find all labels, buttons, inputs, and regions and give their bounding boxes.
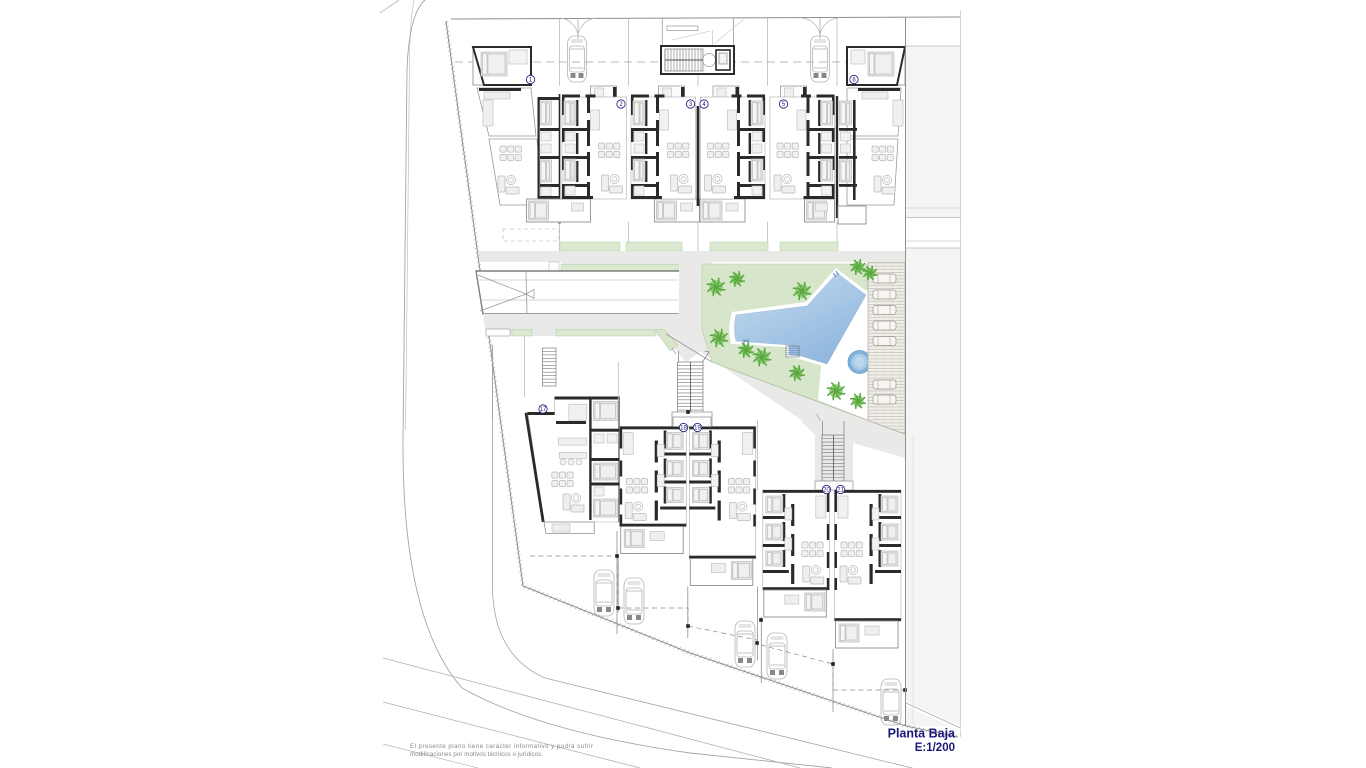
svg-text:21: 21	[837, 488, 844, 494]
svg-text:17: 17	[540, 407, 547, 413]
svg-text:19: 19	[694, 426, 701, 432]
svg-text:E:1/200: E:1/200	[915, 742, 955, 754]
svg-text:18: 18	[680, 426, 687, 432]
svg-text:El presente plano tiene caráct: El presente plano tiene carácter informa…	[410, 743, 593, 750]
svg-text:modificaciones por motivos téc: modificaciones por motivos técnicos o ju…	[410, 751, 543, 758]
svg-text:Planta Baja: Planta Baja	[888, 727, 956, 741]
svg-text:20: 20	[823, 488, 830, 494]
